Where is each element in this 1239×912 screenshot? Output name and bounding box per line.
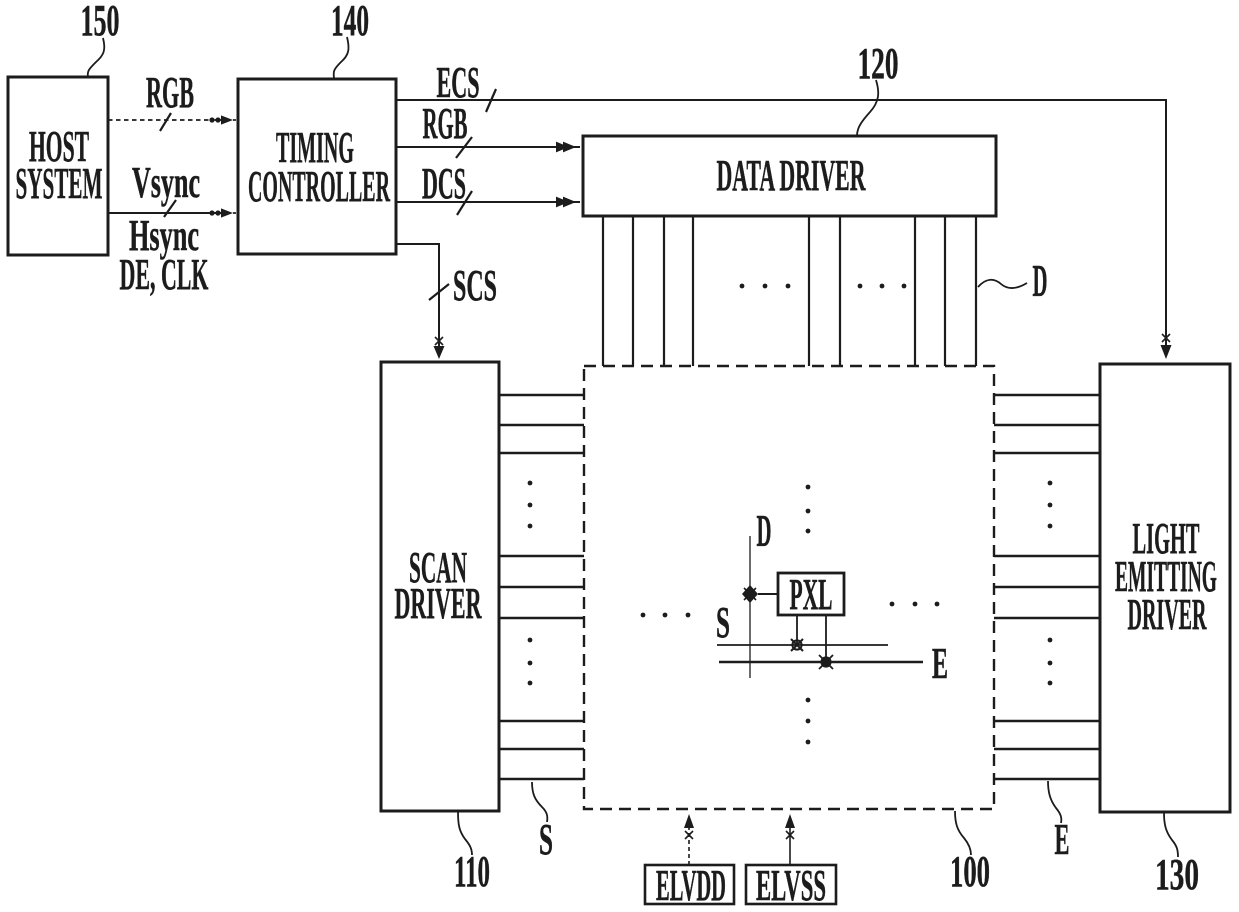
svg-text:RGB: RGB bbox=[146, 68, 194, 117]
svg-text:S: S bbox=[716, 598, 730, 647]
svg-text:Vsync: Vsync bbox=[132, 158, 200, 207]
svg-text:CONTROLLER: CONTROLLER bbox=[248, 162, 391, 211]
svg-text:150: 150 bbox=[81, 0, 120, 45]
svg-text:DCS: DCS bbox=[422, 159, 466, 208]
svg-text:SYSTEM: SYSTEM bbox=[16, 159, 103, 208]
svg-text:PXL: PXL bbox=[790, 570, 833, 619]
svg-text:100: 100 bbox=[950, 847, 990, 896]
svg-text:D: D bbox=[757, 506, 772, 556]
svg-text:SCS: SCS bbox=[453, 261, 497, 310]
svg-text:DE, CLK: DE, CLK bbox=[120, 250, 209, 299]
svg-text:DATA DRIVER: DATA DRIVER bbox=[717, 151, 867, 200]
svg-text:130: 130 bbox=[1155, 850, 1199, 899]
svg-text:D: D bbox=[1033, 256, 1048, 306]
svg-text:E: E bbox=[1055, 815, 1070, 864]
svg-text:E: E bbox=[932, 639, 948, 688]
svg-text:ELVDD: ELVDD bbox=[656, 861, 726, 910]
svg-text:ELVSS: ELVSS bbox=[756, 861, 826, 910]
svg-text:DRIVER: DRIVER bbox=[395, 579, 483, 628]
svg-text:S: S bbox=[539, 815, 553, 864]
svg-text:RGB: RGB bbox=[423, 99, 468, 148]
svg-text:140: 140 bbox=[331, 0, 369, 45]
svg-text:DRIVER: DRIVER bbox=[1128, 590, 1208, 639]
svg-text:120: 120 bbox=[858, 39, 899, 88]
